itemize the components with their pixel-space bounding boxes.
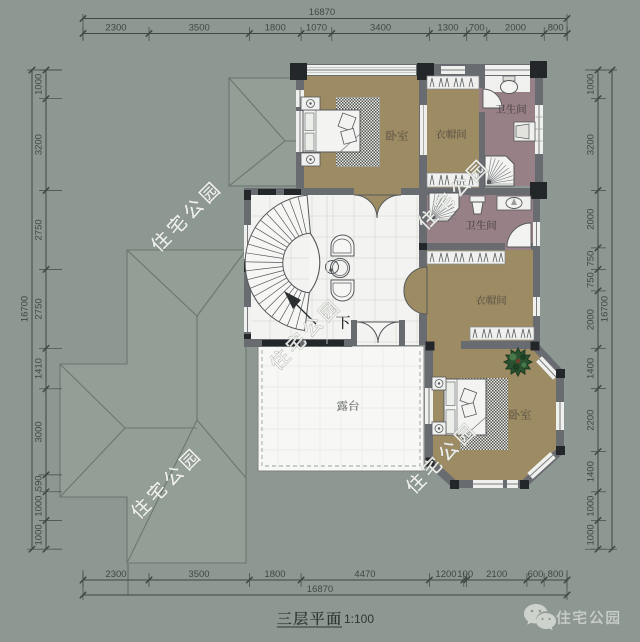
svg-text:1000: 1000 xyxy=(586,524,597,545)
svg-text:1800: 1800 xyxy=(265,23,286,34)
svg-text:1400: 1400 xyxy=(586,461,597,482)
svg-text:1:100: 1:100 xyxy=(344,612,374,626)
svg-text:800: 800 xyxy=(548,23,564,34)
svg-text:100: 100 xyxy=(457,569,473,580)
svg-text:3500: 3500 xyxy=(188,569,209,580)
svg-text:1000: 1000 xyxy=(34,496,45,517)
svg-text:1000: 1000 xyxy=(34,74,45,95)
svg-text:1300: 1300 xyxy=(437,23,458,34)
svg-text:3200: 3200 xyxy=(586,134,597,155)
svg-text:1800: 1800 xyxy=(264,569,285,580)
svg-text:1070: 1070 xyxy=(306,23,327,34)
svg-text:3000: 3000 xyxy=(34,421,45,442)
svg-text:2750: 2750 xyxy=(34,298,45,319)
svg-text:2200: 2200 xyxy=(586,410,597,431)
svg-text:750: 750 xyxy=(586,272,597,288)
svg-text:1410: 1410 xyxy=(34,358,45,379)
svg-text:16700: 16700 xyxy=(600,296,611,322)
svg-text:590: 590 xyxy=(34,475,45,491)
svg-text:3400: 3400 xyxy=(370,23,391,34)
svg-text:2000: 2000 xyxy=(586,309,597,330)
svg-text:2000: 2000 xyxy=(505,23,526,34)
svg-text:2000: 2000 xyxy=(586,209,597,230)
svg-text:3200: 3200 xyxy=(34,134,45,155)
svg-text:700: 700 xyxy=(469,23,485,34)
svg-text:2300: 2300 xyxy=(105,569,126,580)
svg-text:4470: 4470 xyxy=(354,569,375,580)
svg-text:750: 750 xyxy=(586,251,597,267)
svg-text:3500: 3500 xyxy=(189,23,210,34)
svg-text:1200: 1200 xyxy=(435,569,456,580)
svg-text:1400: 1400 xyxy=(586,358,597,379)
svg-text:16870: 16870 xyxy=(307,584,333,595)
svg-text:2750: 2750 xyxy=(34,219,45,240)
svg-text:600: 600 xyxy=(528,569,544,580)
svg-text:800: 800 xyxy=(548,569,564,580)
svg-text:2100: 2100 xyxy=(486,569,507,580)
svg-text:1000: 1000 xyxy=(586,74,597,95)
svg-text:1000: 1000 xyxy=(586,496,597,517)
svg-text:16870: 16870 xyxy=(309,7,335,18)
svg-text:1000: 1000 xyxy=(34,524,45,545)
svg-text:2300: 2300 xyxy=(105,23,126,34)
svg-text:16700: 16700 xyxy=(20,296,31,322)
